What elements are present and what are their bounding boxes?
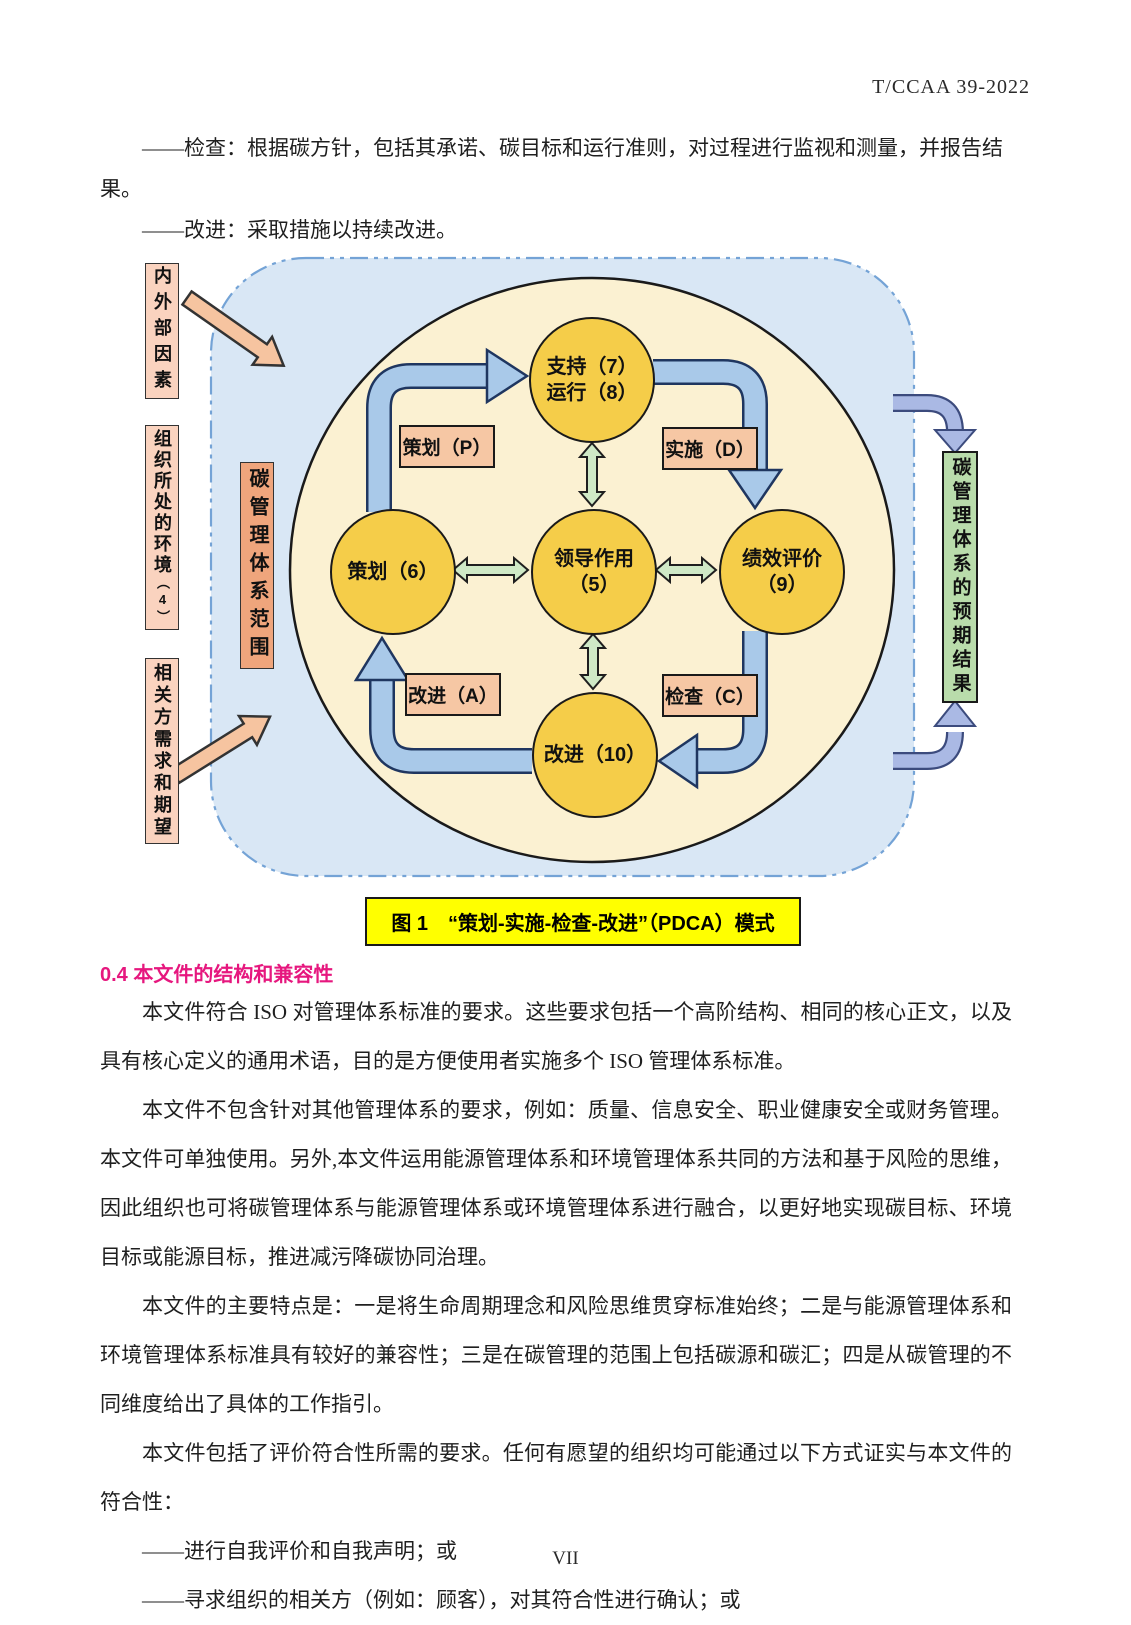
- scope-box: 碳管理体系范围: [240, 462, 274, 669]
- circle-planning: 策划（6）: [330, 509, 456, 635]
- pdca-figure: 内外部因素 组织所处的环境（4） 相关方需求和期望 碳管理体系范围 碳管理体系的…: [115, 240, 995, 940]
- pdca-label-check: 检查（C）: [662, 674, 758, 717]
- paragraph: 本文件包括了评价符合性所需的要求。任何有愿望的组织均可能通过以下方式证实与本文件…: [100, 1429, 1012, 1527]
- paragraph: 本文件不包含针对其他管理体系的要求，例如：质量、信息安全、职业健康安全或财务管理…: [100, 1086, 1012, 1282]
- pdca-label-plan: 策划（P）: [399, 425, 495, 468]
- paragraph: 本文件符合 ISO 对管理体系标准的要求。这些要求包括一个高阶结构、相同的核心正…: [100, 988, 1012, 1086]
- circle-performance-evaluation: 绩效评价 （9）: [719, 509, 845, 635]
- page-number: VII: [0, 1548, 1131, 1570]
- figure-caption: 图 1 “策划-实施-检查-改进”（PDCA）模式: [365, 897, 801, 946]
- intended-results-box: 碳管理体系的预期结果: [942, 451, 978, 703]
- circle-improvement: 改进（10）: [532, 692, 658, 818]
- intro-list: ——检查：根据碳方针，包括其承诺、碳目标和运行准则，对过程进行监视和测量，并报告…: [100, 128, 1030, 251]
- list-item: ——寻求组织的相关方（例如：顾客），对其符合性进行确认；或: [100, 1576, 1012, 1625]
- document-page: { "page": { "doc_number": "T/CCAA 39-202…: [0, 0, 1131, 1600]
- context-box-interested-parties: 相关方需求和期望: [145, 658, 179, 844]
- section-body: 本文件符合 ISO 对管理体系标准的要求。这些要求包括一个高阶结构、相同的核心正…: [100, 988, 1012, 1625]
- clause-ref: （4）: [155, 576, 170, 626]
- context-box-internal-external-factors: 内外部因素: [145, 263, 179, 399]
- section-heading: 0.4 本文件的结构和兼容性: [100, 958, 333, 987]
- pdca-label-act: 改进（A）: [405, 673, 501, 716]
- pdca-label-do: 实施（D）: [662, 427, 758, 470]
- circle-leadership: 领导作用 （5）: [531, 509, 657, 635]
- doc-number: T/CCAA 39-2022: [872, 76, 1030, 99]
- paragraph: 本文件的主要特点是：一是将生命周期理念和风险思维贯穿标准始终；二是与能源管理体系…: [100, 1282, 1012, 1429]
- intro-line-check: ——检查：根据碳方针，包括其承诺、碳目标和运行准则，对过程进行监视和测量，并报告…: [100, 128, 1030, 210]
- circle-support-operation: 支持（7） 运行（8）: [529, 317, 655, 443]
- context-box-organization-context: 组织所处的环境（4）: [145, 425, 179, 630]
